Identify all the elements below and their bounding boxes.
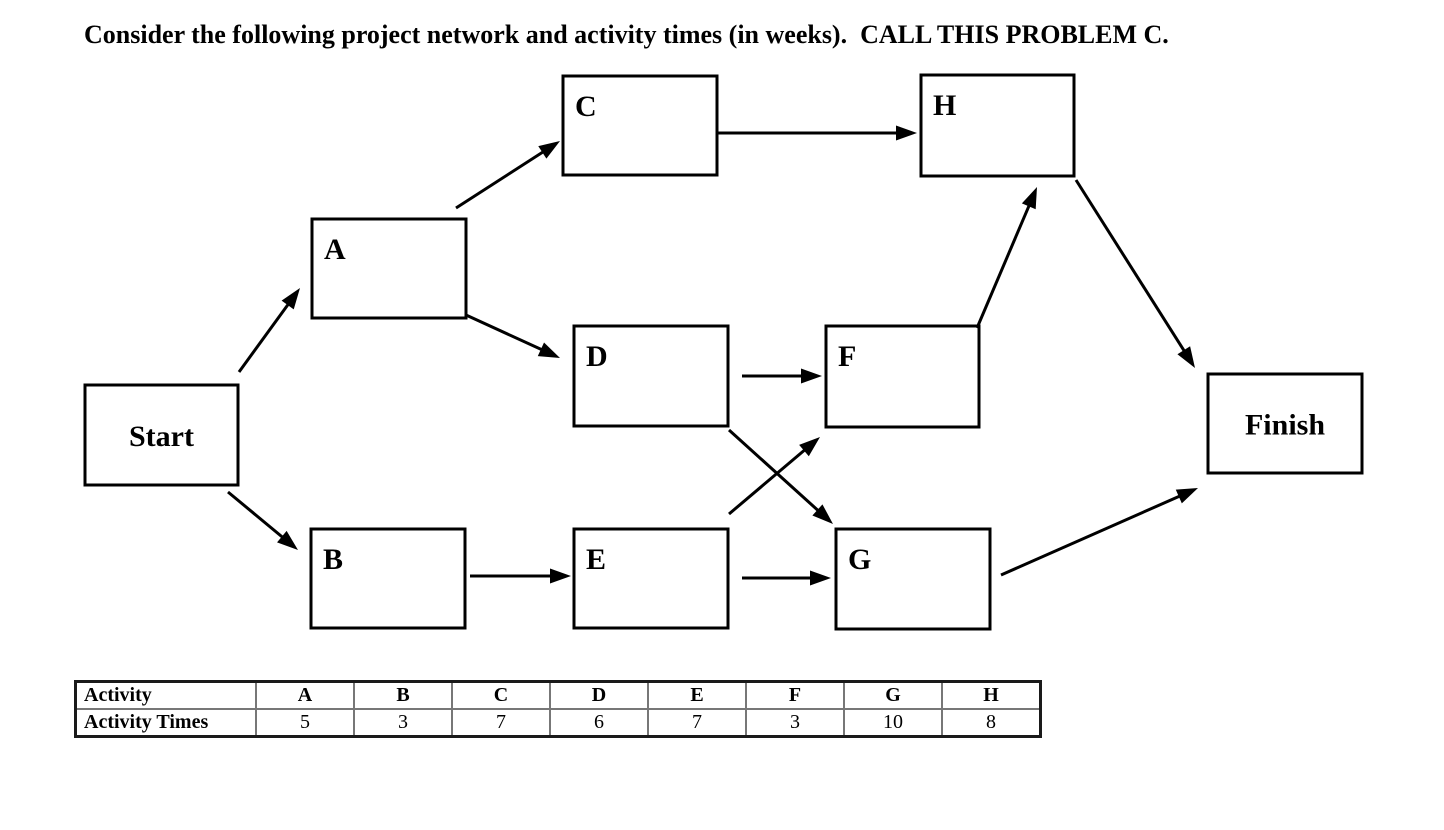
node-G: G xyxy=(836,529,990,629)
activity-header-row: Activity A B C D E F G H xyxy=(76,682,1041,710)
activity-header-cell: B xyxy=(354,682,452,710)
node-A: A xyxy=(312,219,466,318)
activity-header-cell: G xyxy=(844,682,942,710)
activity-time-cell: 3 xyxy=(746,709,844,737)
activity-header-cell: F xyxy=(746,682,844,710)
activity-time-cell: 10 xyxy=(844,709,942,737)
edge-E-F xyxy=(729,437,820,514)
activity-time-cell: 8 xyxy=(942,709,1041,737)
edge-arrowhead xyxy=(810,571,831,586)
activity-header-cell: D xyxy=(550,682,648,710)
edge-line xyxy=(239,298,293,372)
edge-F-H xyxy=(977,187,1037,328)
project-network-diagram: StartABCDEFGHFinish xyxy=(0,0,1444,670)
activity-header-cell: E xyxy=(648,682,746,710)
activity-header-cell: C xyxy=(452,682,550,710)
edge-D-F xyxy=(742,369,822,384)
node-C-label: C xyxy=(575,90,597,123)
node-start-label: Start xyxy=(129,420,194,453)
edge-start-B xyxy=(228,492,298,550)
edge-A-C xyxy=(456,141,560,208)
node-F: F xyxy=(826,326,979,427)
activity-time-cell: 7 xyxy=(648,709,746,737)
activity-header-cell: H xyxy=(942,682,1041,710)
edge-line xyxy=(1001,493,1187,575)
node-H-label: H xyxy=(933,89,956,122)
node-C: C xyxy=(563,76,717,175)
edge-G-finish xyxy=(1001,488,1198,575)
activity-header-cell: A xyxy=(256,682,354,710)
edge-arrowhead xyxy=(1177,346,1195,368)
activity-row-label: Activity xyxy=(76,682,257,710)
edge-arrowhead xyxy=(538,342,560,358)
edge-line xyxy=(729,445,811,514)
node-start: Start xyxy=(85,385,238,485)
edge-arrowhead xyxy=(801,369,822,384)
node-D-label: D xyxy=(586,340,608,373)
page: Consider the following project network a… xyxy=(0,0,1444,830)
edge-line xyxy=(977,198,1032,328)
activity-times-table: Activity A B C D E F G H Activity Times … xyxy=(74,680,1042,738)
edge-D-G xyxy=(729,430,833,524)
edge-start-A xyxy=(239,288,300,372)
edge-line xyxy=(1076,180,1189,358)
node-finish-label: Finish xyxy=(1245,409,1325,442)
edge-line xyxy=(456,147,550,208)
node-A-label: A xyxy=(324,233,346,266)
edge-line xyxy=(228,492,289,542)
node-D: D xyxy=(574,326,728,426)
activity-times-row-label: Activity Times xyxy=(76,709,257,737)
node-B: B xyxy=(311,529,465,628)
activity-times-row: Activity Times 5 3 7 6 7 3 10 8 xyxy=(76,709,1041,737)
activity-time-cell: 7 xyxy=(452,709,550,737)
node-E-label: E xyxy=(586,543,606,576)
edge-arrowhead xyxy=(282,288,300,309)
edge-arrowhead xyxy=(896,126,917,141)
edge-E-G xyxy=(742,571,831,586)
node-G-label: G xyxy=(848,543,871,576)
edge-A-D xyxy=(466,315,560,358)
activity-time-cell: 3 xyxy=(354,709,452,737)
activity-time-cell: 5 xyxy=(256,709,354,737)
edge-arrowhead xyxy=(1022,187,1037,209)
node-F-label: F xyxy=(838,340,856,373)
node-H: H xyxy=(921,75,1074,176)
edge-C-H xyxy=(716,126,917,141)
edge-H-finish xyxy=(1076,180,1195,368)
node-E: E xyxy=(574,529,728,628)
node-B-label: B xyxy=(323,543,343,576)
activity-time-cell: 6 xyxy=(550,709,648,737)
node-finish: Finish xyxy=(1208,374,1362,473)
edge-B-E xyxy=(470,569,571,584)
edge-arrowhead xyxy=(550,569,571,584)
edge-arrowhead xyxy=(1176,488,1198,503)
edge-line xyxy=(466,315,549,353)
edge-arrowhead xyxy=(538,141,560,159)
